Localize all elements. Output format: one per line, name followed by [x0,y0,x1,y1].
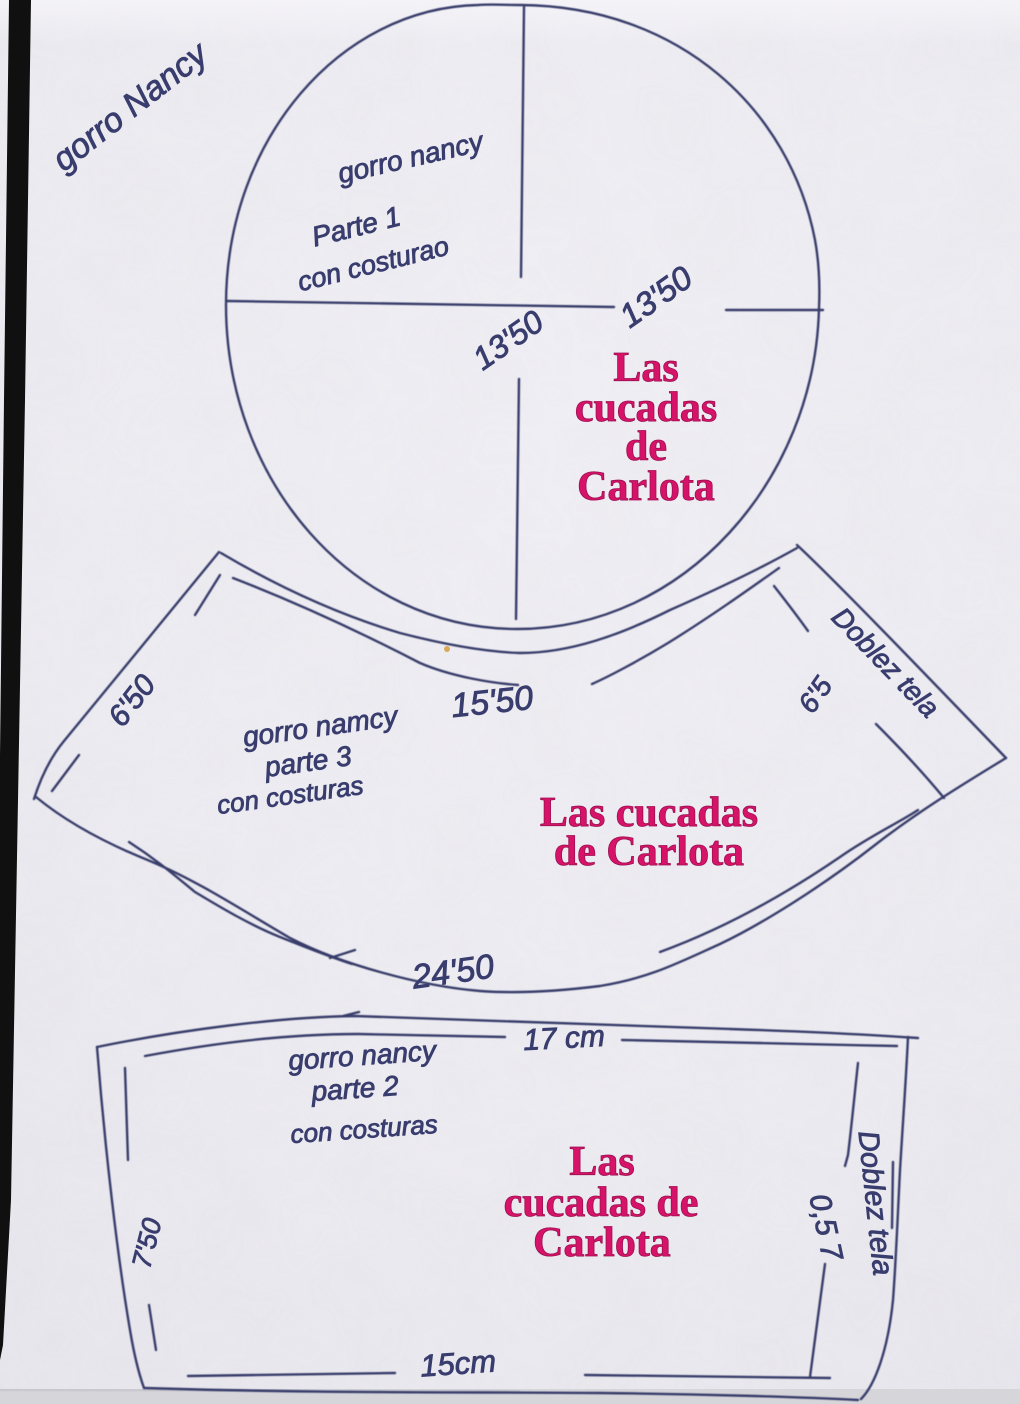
svg-text:de Carlota: de Carlota [554,829,744,875]
svg-text:Carlota: Carlota [533,1220,671,1266]
svg-text:17 cm: 17 cm [522,1020,605,1057]
svg-text:Las: Las [569,1139,634,1185]
svg-text:parte 2: parte 2 [309,1070,400,1107]
svg-text:15cm: 15cm [419,1343,497,1383]
svg-text:Carlota: Carlota [577,464,715,510]
